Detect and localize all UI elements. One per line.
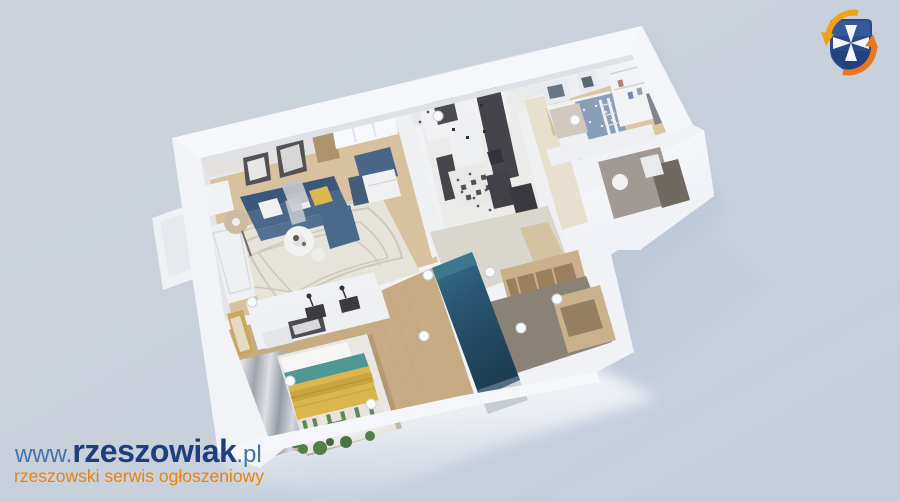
svg-text:rzeszowski serwis ogłoszeniowy: rzeszowski serwis ogłoszeniowy xyxy=(14,466,264,486)
